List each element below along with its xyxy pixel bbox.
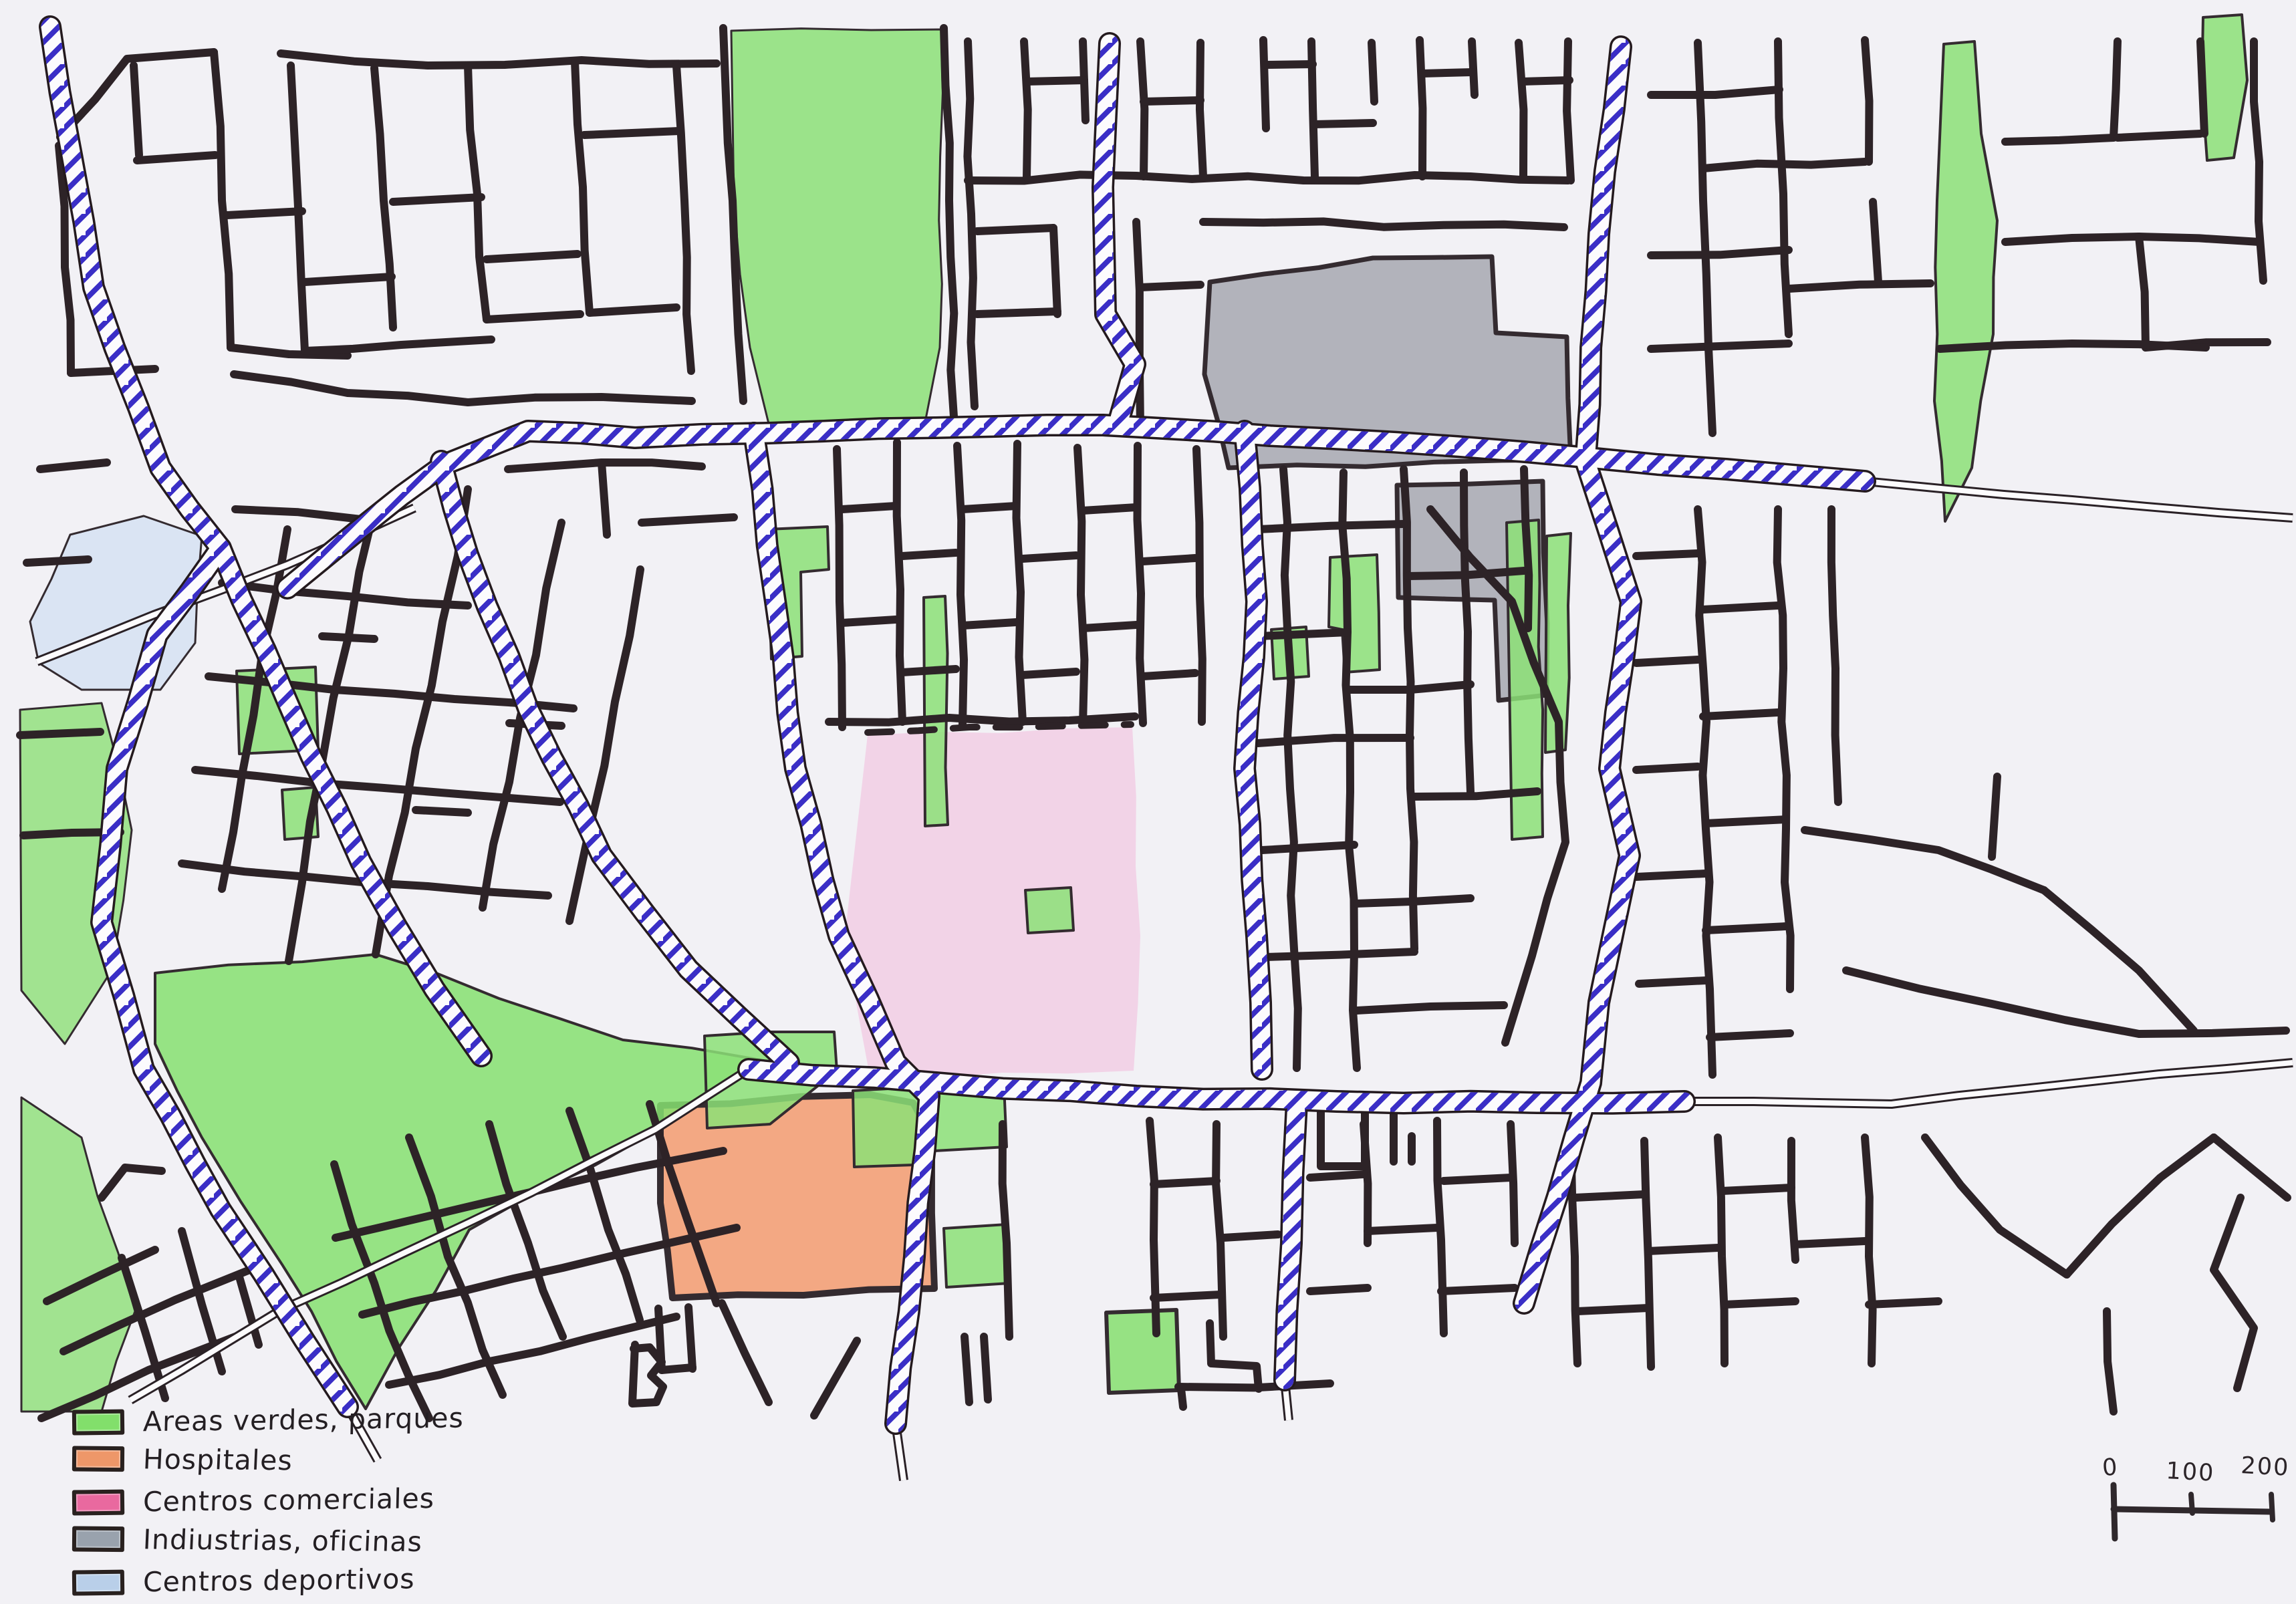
street (902, 669, 956, 672)
zone-parque-franja-derecha (1934, 41, 1997, 521)
hand-drawn-city-map: 0 100 200 Areas verdes, parques Hospital… (0, 0, 2296, 1604)
street (134, 65, 139, 155)
street (2005, 237, 2259, 242)
street (1024, 41, 1028, 178)
sports-center-swatch (72, 1570, 124, 1596)
legend-label: Centros comerciales (142, 1482, 434, 1518)
street (227, 211, 302, 215)
street (374, 68, 393, 327)
street (281, 53, 717, 65)
street (944, 28, 954, 426)
street (842, 620, 896, 623)
street (487, 254, 578, 259)
street (1140, 41, 1144, 176)
street (322, 636, 374, 639)
street (1357, 1005, 1504, 1011)
street (1703, 606, 1778, 610)
street (814, 1341, 857, 1416)
street (968, 174, 1568, 180)
street (984, 1337, 988, 1399)
street (1519, 43, 1523, 176)
legend-item-centros-deportivos: Centros deportivos (72, 1561, 465, 1599)
street (2114, 41, 2118, 138)
zone-parque-superior-centro (731, 29, 942, 438)
street (1315, 123, 1373, 124)
street (977, 311, 1057, 314)
scale-tick-100 (2191, 1494, 2192, 1513)
street (1873, 202, 1878, 282)
street (1422, 72, 1472, 74)
street (584, 131, 679, 135)
street (1636, 553, 1698, 556)
map-canvas: 0 100 200 (0, 0, 2296, 1604)
street (1789, 283, 1930, 289)
street (1869, 1301, 1938, 1305)
legend-label: Hospitales (142, 1443, 293, 1476)
street (1524, 469, 1529, 628)
street (2118, 134, 2200, 138)
street (1703, 712, 1778, 716)
street (1203, 221, 1564, 227)
street (1196, 449, 1202, 722)
street (1027, 80, 1084, 82)
street (1639, 980, 1706, 984)
street (575, 61, 590, 313)
street (957, 446, 964, 724)
street (1703, 162, 1865, 168)
street (305, 340, 491, 351)
street (837, 449, 842, 727)
industry-swatch (72, 1526, 124, 1552)
street (1181, 1389, 1183, 1407)
street (1216, 1124, 1223, 1337)
street (2214, 1138, 2287, 1198)
street (393, 197, 481, 202)
street (1178, 1383, 1330, 1387)
street (1077, 448, 1084, 724)
scale-label-100: 100 (2166, 1458, 2216, 1487)
street (1321, 1109, 1365, 1166)
street (487, 314, 580, 319)
scale-label-0: 0 (2101, 1454, 2120, 1482)
street (1577, 1308, 1648, 1311)
street (1865, 1138, 1873, 1363)
street (897, 442, 902, 722)
street (1372, 43, 1374, 102)
zone-parque-cuadro-4 (1106, 1310, 1179, 1393)
street (1083, 625, 1136, 628)
legend-item-centros-comerciales: Centros comerciales (72, 1481, 465, 1519)
street (590, 307, 676, 313)
street (1154, 1295, 1221, 1298)
map-legend: Areas verdes, parques Hospitales Centros… (72, 1403, 464, 1604)
street (2044, 890, 2194, 1031)
scale-tick-200 (2271, 1494, 2273, 1520)
main-road-casing (441, 461, 789, 1063)
legend-item-hospitales: Hospitales (72, 1442, 464, 1478)
street (602, 462, 607, 535)
street (1083, 507, 1136, 511)
street (2214, 1198, 2254, 1388)
street (1258, 632, 1348, 636)
street (1706, 819, 1786, 823)
street (27, 559, 88, 563)
street (2200, 41, 2204, 134)
street (222, 583, 468, 606)
street (416, 810, 468, 813)
street (1263, 40, 1266, 128)
street (842, 506, 896, 509)
street (1777, 509, 1791, 989)
street (1053, 228, 1057, 314)
street (2005, 138, 2114, 142)
street (1992, 777, 1997, 857)
street (1003, 1124, 1009, 1337)
street (234, 374, 692, 402)
street (977, 228, 1053, 231)
street (1725, 1301, 1795, 1305)
street (214, 52, 231, 348)
zone-parque-banda-izq-2 (21, 1097, 135, 1412)
street (967, 41, 975, 406)
street (2067, 1138, 2214, 1275)
street (1846, 970, 2286, 1034)
street (1567, 41, 1571, 180)
street (1200, 43, 1203, 176)
street (1140, 285, 1200, 287)
scale-bar: 0 100 200 (2101, 1452, 2290, 1539)
street (1420, 40, 1422, 176)
green-area-swatch (72, 1410, 124, 1436)
street (20, 732, 100, 735)
street (1143, 558, 1195, 561)
street (137, 155, 215, 160)
street (829, 716, 1135, 722)
mall-swatch (72, 1490, 124, 1516)
street (468, 65, 487, 319)
legend-label: Centros deportivos (142, 1563, 415, 1598)
street (1575, 1194, 1644, 1198)
street (676, 65, 691, 371)
street (1441, 1288, 1515, 1291)
street (1023, 672, 1076, 675)
street (1511, 1124, 1515, 1243)
main-road-fill (441, 461, 789, 1063)
street (1210, 1323, 1259, 1389)
legend-label: Indiustrias, oficinas (142, 1523, 423, 1558)
legend-label: Areas verdes, parques (142, 1401, 464, 1438)
street (1831, 509, 1838, 802)
street (1651, 250, 1789, 255)
zone-parque-tira (924, 596, 948, 826)
scale-label-200: 200 (2241, 1452, 2291, 1482)
street (305, 277, 392, 282)
street (1651, 344, 1789, 349)
hospital-swatch (72, 1446, 124, 1472)
street (1710, 1033, 1790, 1037)
street (1698, 43, 1708, 348)
street (658, 1309, 662, 1370)
main-road-hatch (1285, 1103, 1297, 1380)
street (235, 509, 361, 519)
street (963, 506, 1016, 509)
street (1262, 845, 1354, 850)
street (1865, 40, 1870, 162)
street (1636, 874, 1706, 877)
street (1283, 469, 1298, 1068)
street (1795, 1241, 1865, 1244)
scale-tick-0 (2114, 1485, 2115, 1539)
zone-parque-chico-1 (1025, 888, 1073, 933)
street (1138, 446, 1144, 723)
zone-parque-esquina-sup-der (2202, 15, 2247, 160)
street (102, 1168, 162, 1198)
zone-parque-L-2 (1329, 555, 1380, 672)
street (1017, 444, 1023, 722)
street (1310, 1174, 1364, 1178)
street (1636, 767, 1698, 770)
street (1651, 90, 1779, 95)
street (662, 1367, 692, 1370)
street (1708, 348, 1712, 433)
street (642, 517, 734, 523)
street (1805, 830, 2044, 890)
street (965, 1337, 969, 1402)
legend-item-industrias-oficinas: Indiustrias, oficinas (72, 1522, 464, 1559)
minor-road-fill (1865, 481, 2293, 518)
street (1636, 660, 1698, 663)
street (963, 622, 1016, 626)
street (2139, 237, 2267, 348)
street (1223, 1234, 1278, 1238)
street (1444, 1178, 1511, 1181)
street (1706, 926, 1786, 930)
street (1154, 1181, 1217, 1184)
street (902, 553, 956, 556)
street (1143, 673, 1195, 676)
street (1940, 344, 2206, 349)
street (1368, 1228, 1437, 1231)
main-road-hatch (1245, 431, 1262, 1069)
main-road-hatch (1103, 43, 1135, 425)
street (688, 1307, 692, 1369)
street (1925, 1138, 2067, 1275)
street (722, 1303, 769, 1402)
legend-item-areas-verdes: Areas verdes, parques (72, 1401, 465, 1439)
street (1265, 952, 1414, 957)
street (1144, 100, 1200, 102)
street (1523, 80, 1569, 82)
street (1023, 555, 1076, 559)
street (1266, 64, 1313, 65)
street (40, 462, 107, 469)
zone-parque-cuadro-1 (944, 1224, 1009, 1287)
street (2107, 1311, 2114, 1412)
street (1310, 1288, 1368, 1291)
street (1472, 41, 1475, 95)
street (1648, 1248, 1718, 1251)
street (1357, 898, 1471, 904)
street (1414, 791, 1537, 797)
street (1258, 524, 1404, 529)
street (1258, 738, 1410, 743)
main-road-hatch (441, 461, 789, 1063)
street (1698, 509, 1712, 1075)
street (1722, 1188, 1791, 1191)
